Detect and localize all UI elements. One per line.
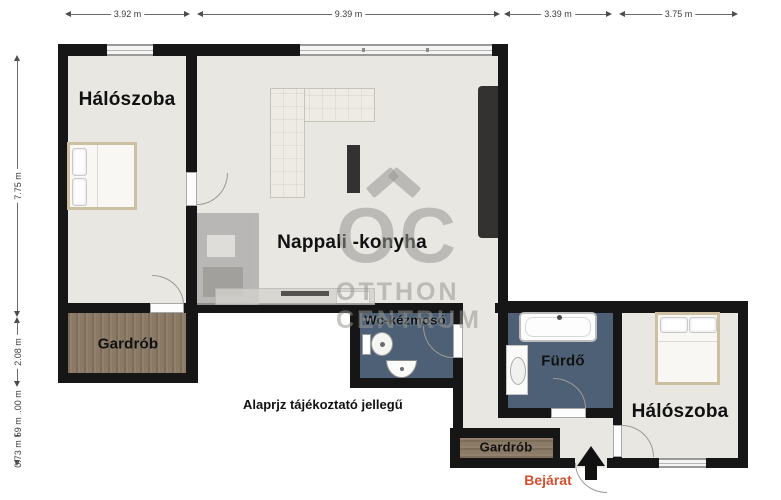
toilet-tank <box>362 334 371 355</box>
dimension-left-2: 2.08 m <box>13 317 22 387</box>
dim-arrow <box>14 460 20 466</box>
room-label-wardrobe-left: Gardrób <box>98 336 159 353</box>
floor-plan: Hálószoba Nappali -konyha Gardrób Wc-kéz… <box>0 0 781 500</box>
duvet-fold <box>658 341 717 342</box>
sofa-left <box>270 88 305 198</box>
dim-label: 7.75 m <box>13 169 23 203</box>
room-label-bathroom: Fürdő <box>541 353 585 370</box>
bathroom-sink-counter <box>506 345 528 395</box>
wall-hall-bottom-stub <box>607 458 613 468</box>
kitchen-counter <box>215 288 375 305</box>
bathtub-faucet <box>557 315 562 320</box>
bed-right <box>655 312 720 385</box>
dimension-left-5: 0.73 m <box>13 441 22 466</box>
pillow <box>72 178 87 206</box>
window-bedroom-left <box>107 44 153 56</box>
room-label-living-kitchen: Nappali -konyha <box>277 232 427 254</box>
wall-divider-bath-bedroom <box>613 301 622 425</box>
bed-left <box>67 142 137 210</box>
door-bedroom-left <box>186 172 197 206</box>
wall-left <box>58 44 68 383</box>
kitchen-sink <box>336 291 370 304</box>
window-midline <box>659 463 706 464</box>
door-bedroom-right <box>613 425 622 457</box>
dimension-top-4: 3.75 m <box>619 10 738 19</box>
dim-arrow <box>494 11 500 17</box>
dim-arrow <box>184 11 190 17</box>
entrance-arrow-icon <box>577 446 605 466</box>
kitchen-unit-detail <box>207 235 235 257</box>
wall-hall-left <box>453 388 463 428</box>
door-bathroom <box>551 408 586 418</box>
window-midline <box>300 50 492 51</box>
window-mullion <box>426 48 429 52</box>
door-wc <box>453 324 463 358</box>
window-bedroom-right <box>659 458 706 468</box>
dim-arrow <box>606 11 612 17</box>
entrance-label: Bejárat <box>524 472 571 488</box>
dimension-top-2: 9.39 m <box>197 10 500 19</box>
entrance-arrow-shaft <box>585 464 597 480</box>
dim-arrow <box>732 11 738 17</box>
dim-label: 9.39 m <box>332 9 366 19</box>
bathroom-sink-basin <box>510 357 526 385</box>
bathtub-basin <box>525 317 591 337</box>
wall-wardrobe-left-bottom <box>58 373 198 383</box>
pillow <box>72 148 87 176</box>
window-living <box>300 44 492 56</box>
toilet-bowl <box>371 332 393 356</box>
dim-label: 2.08 m <box>13 335 23 369</box>
room-label-wc: Wc-kézmosó <box>364 313 445 328</box>
room-label-bedroom-left: Hálószoba <box>79 89 176 111</box>
wall-hall-bottom <box>553 458 575 468</box>
dimension-top-3: 3.39 m <box>504 10 612 19</box>
disclaimer-text: Alaprjz tájékoztató jellegű <box>243 397 403 412</box>
wc-sink-drain <box>400 367 404 371</box>
dim-label: 3.92 m <box>111 9 145 19</box>
room-label-wardrobe-entry: Gardrób <box>480 440 533 455</box>
tv-cabinet <box>478 86 498 238</box>
bathtub <box>519 312 597 342</box>
room-label-bedroom-right: Hálószoba <box>632 401 729 423</box>
dimension-left-1: 7.75 m <box>13 55 22 317</box>
tv <box>347 145 360 193</box>
window-midline <box>107 50 153 51</box>
dim-label: 3.39 m <box>541 9 575 19</box>
dimension-top-1: 3.92 m <box>65 10 190 19</box>
wall-living-right <box>498 44 508 303</box>
cooktop <box>281 291 329 296</box>
toilet-drain <box>380 342 385 347</box>
wall-right <box>738 301 748 468</box>
wall-wardrobe-left-right <box>186 313 198 383</box>
duvet-fold <box>97 145 98 207</box>
pillow <box>689 317 717 333</box>
pillow <box>660 317 688 333</box>
dim-label: 3.75 m <box>662 9 696 19</box>
window-mullion <box>362 48 365 52</box>
